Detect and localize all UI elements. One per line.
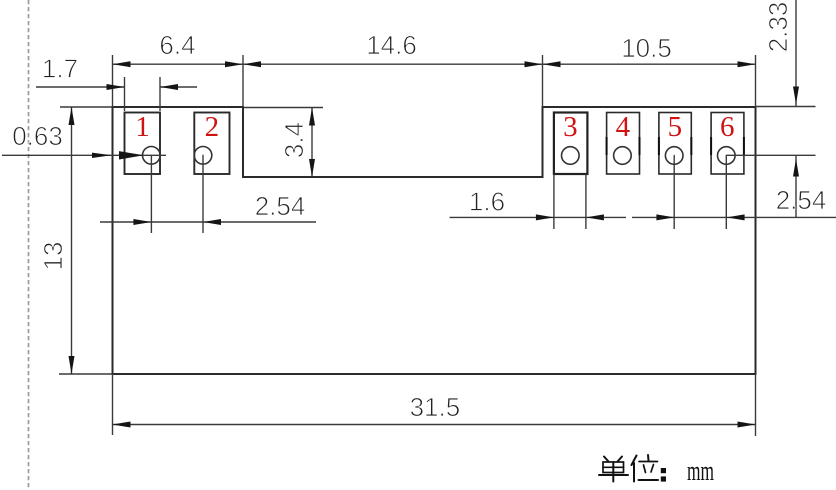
svg-text:2.33: 2.33 bbox=[763, 2, 793, 53]
svg-text:31.5: 31.5 bbox=[410, 392, 461, 422]
svg-text:13: 13 bbox=[38, 242, 68, 271]
svg-text:3.4: 3.4 bbox=[279, 122, 309, 158]
svg-text:0.63: 0.63 bbox=[12, 121, 63, 151]
svg-text:6.4: 6.4 bbox=[159, 30, 195, 60]
svg-text:3: 3 bbox=[563, 111, 578, 143]
svg-text:1: 1 bbox=[135, 111, 150, 143]
svg-text:2.54: 2.54 bbox=[776, 185, 827, 215]
svg-text:10.5: 10.5 bbox=[621, 33, 672, 63]
svg-text:5: 5 bbox=[668, 111, 683, 143]
svg-text:14.6: 14.6 bbox=[366, 30, 417, 60]
svg-text:4: 4 bbox=[616, 111, 631, 143]
svg-text:1.6: 1.6 bbox=[469, 187, 505, 217]
svg-text:2: 2 bbox=[205, 111, 220, 143]
svg-text:2.54: 2.54 bbox=[255, 191, 306, 221]
svg-text:mm: mm bbox=[687, 456, 714, 487]
svg-text:6: 6 bbox=[720, 111, 735, 143]
svg-text:1.7: 1.7 bbox=[42, 54, 78, 84]
